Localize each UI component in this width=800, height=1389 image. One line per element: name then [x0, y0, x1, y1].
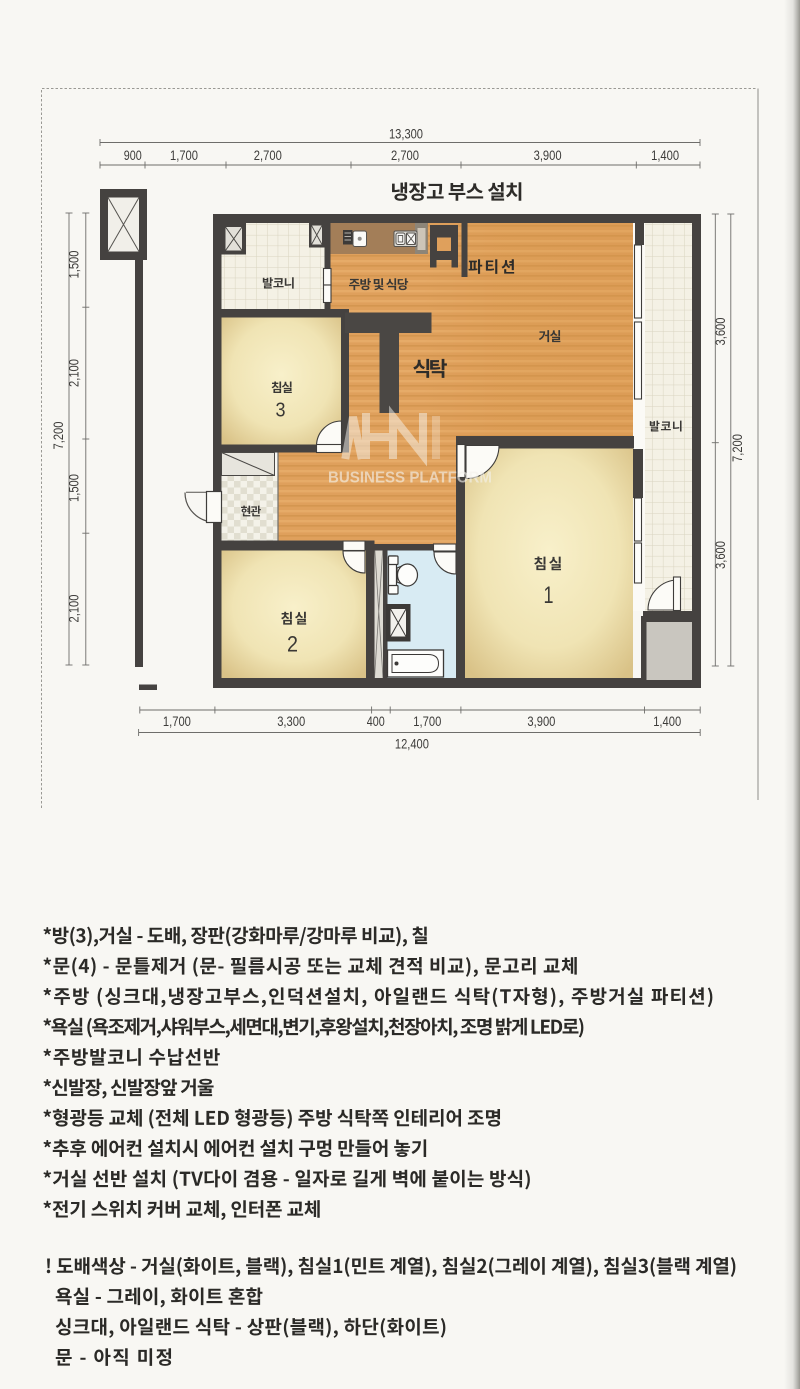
- svg-text:3,600: 3,600: [713, 317, 729, 345]
- svg-text:7,200: 7,200: [51, 421, 67, 449]
- svg-text:1,400: 1,400: [651, 148, 679, 164]
- svg-text:1,500: 1,500: [67, 474, 83, 502]
- svg-text:3,900: 3,900: [534, 148, 562, 164]
- svg-text:1,700: 1,700: [170, 148, 198, 164]
- svg-text:3,600: 3,600: [713, 541, 729, 569]
- svg-text:1,700: 1,700: [413, 714, 441, 730]
- svg-text:1,700: 1,700: [163, 714, 191, 730]
- svg-text:2,100: 2,100: [67, 359, 83, 387]
- svg-text:400: 400: [367, 714, 385, 730]
- svg-text:1,400: 1,400: [653, 714, 681, 730]
- svg-text:900: 900: [124, 148, 142, 164]
- svg-text:2,700: 2,700: [254, 148, 282, 164]
- svg-text:12,400: 12,400: [395, 737, 429, 753]
- svg-text:BUSINESS PLATFORM: BUSINESS PLATFORM: [328, 470, 492, 487]
- svg-text:2,100: 2,100: [67, 594, 83, 622]
- svg-text:1,500: 1,500: [67, 250, 83, 278]
- svg-text:13,300: 13,300: [389, 127, 423, 143]
- svg-text:3: 3: [276, 400, 286, 422]
- svg-text:7,200: 7,200: [730, 434, 746, 462]
- svg-text:2,700: 2,700: [391, 148, 419, 164]
- svg-text:1: 1: [544, 582, 554, 609]
- svg-text:3,300: 3,300: [277, 714, 305, 730]
- svg-text:2: 2: [287, 632, 298, 657]
- svg-text:3,900: 3,900: [527, 714, 555, 730]
